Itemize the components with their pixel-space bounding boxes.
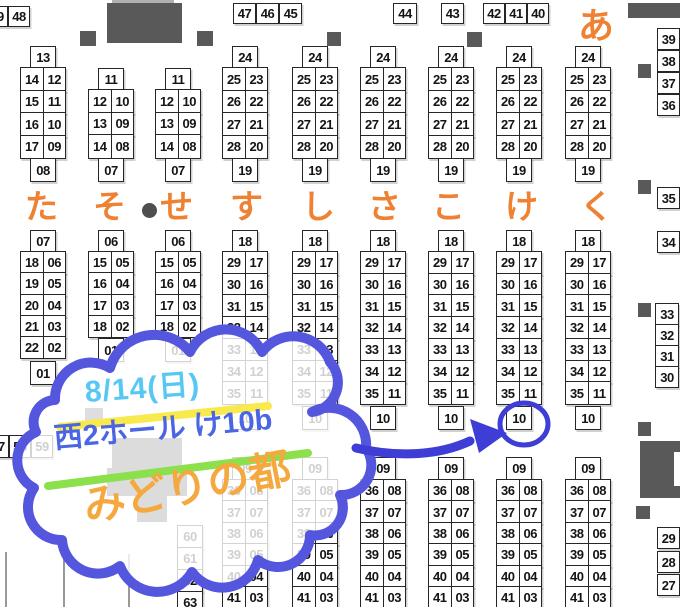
row-label-く: く (580, 190, 613, 223)
row-label-こ: こ (432, 190, 465, 223)
row-label-あ: あ (578, 8, 614, 44)
row-label-し: し (302, 190, 335, 223)
row-label-そ: そ (93, 190, 126, 223)
row-label-た: た (25, 190, 58, 223)
row-label-せ: せ (160, 190, 193, 223)
row-label-す: す (230, 190, 263, 223)
row-label-さ: さ (368, 190, 401, 223)
floor-map: 1314121511161017090811121013091408071112… (0, 0, 680, 607)
row-label-け: け (505, 190, 538, 223)
